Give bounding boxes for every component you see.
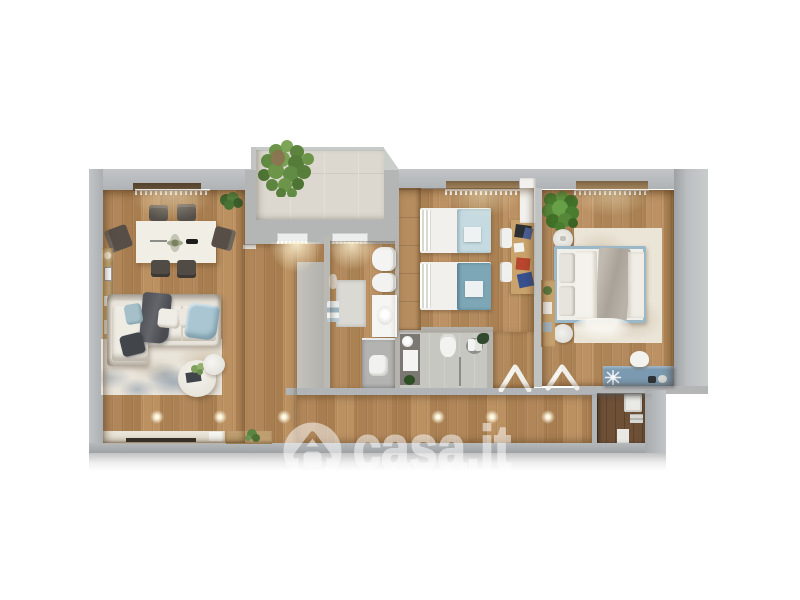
svg-text:casa.it: casa.it	[353, 414, 511, 483]
